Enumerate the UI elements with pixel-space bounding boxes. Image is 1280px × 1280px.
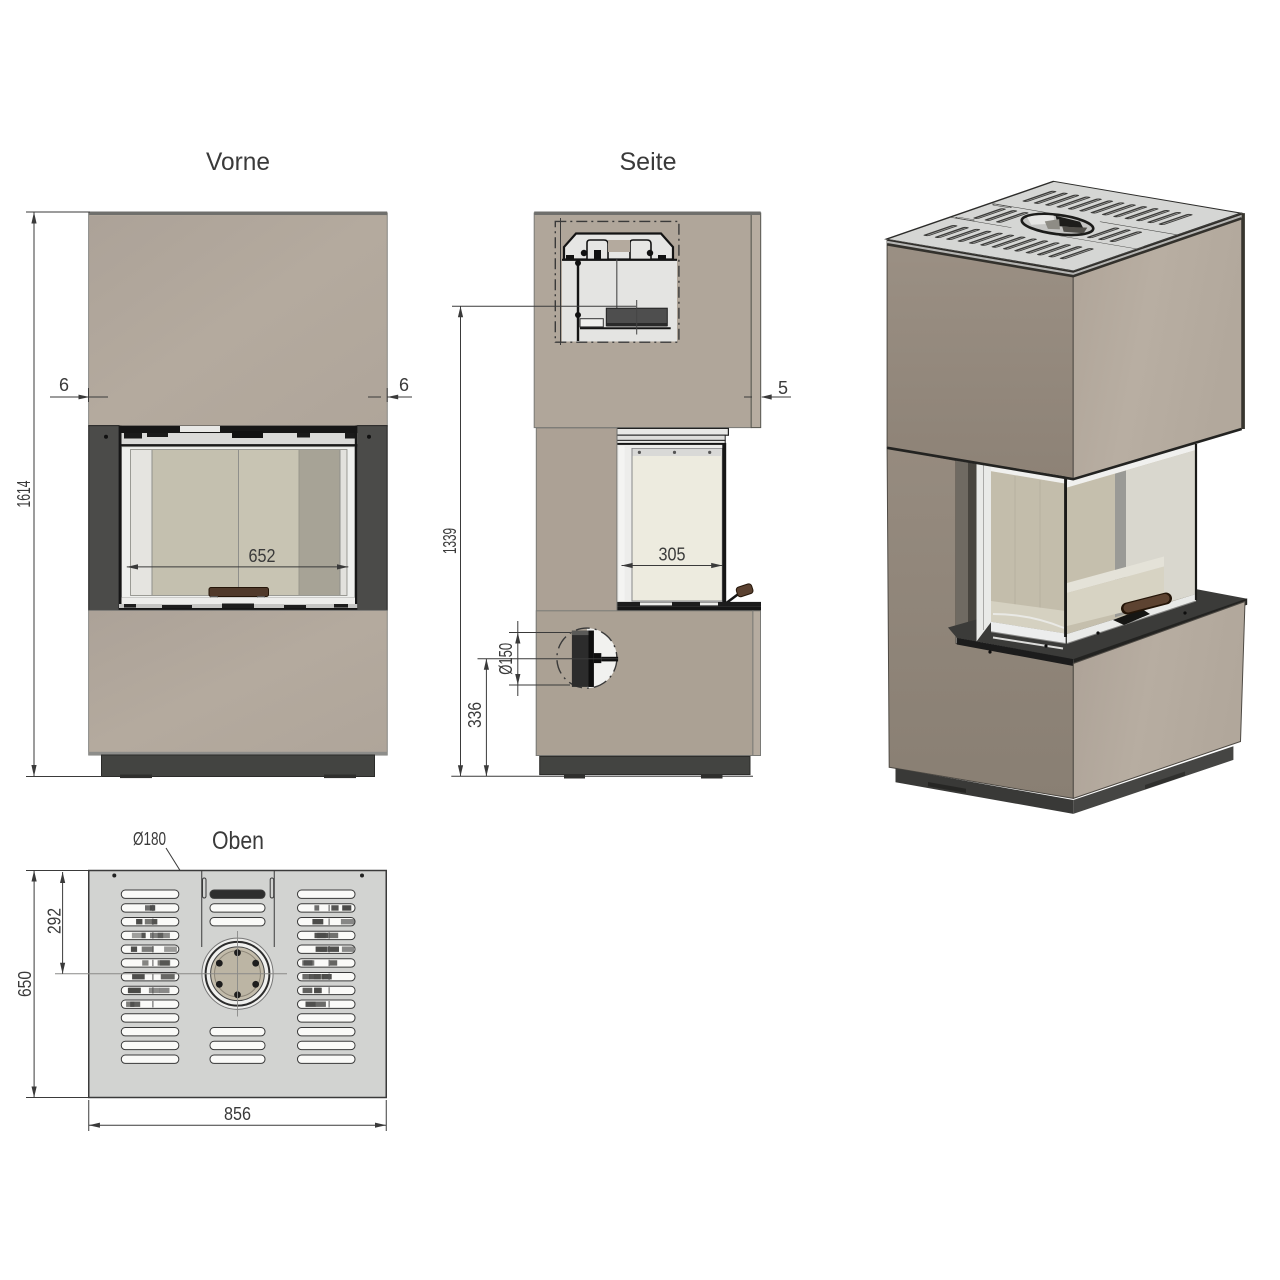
svg-text:Ø180: Ø180 [133, 829, 166, 849]
svg-text:336: 336 [465, 702, 485, 728]
svg-text:292: 292 [45, 908, 65, 934]
svg-text:1339: 1339 [440, 528, 460, 554]
svg-text:650: 650 [15, 971, 35, 997]
svg-text:Vorne: Vorne [206, 148, 270, 176]
svg-text:Seite: Seite [620, 148, 677, 176]
svg-text:856: 856 [224, 1104, 251, 1124]
svg-text:6: 6 [399, 375, 409, 395]
svg-text:652: 652 [249, 546, 276, 566]
svg-text:Oben: Oben [212, 827, 264, 855]
svg-text:1614: 1614 [14, 481, 34, 508]
svg-text:6: 6 [59, 375, 69, 395]
svg-text:305: 305 [659, 545, 686, 565]
svg-text:5: 5 [778, 378, 788, 398]
